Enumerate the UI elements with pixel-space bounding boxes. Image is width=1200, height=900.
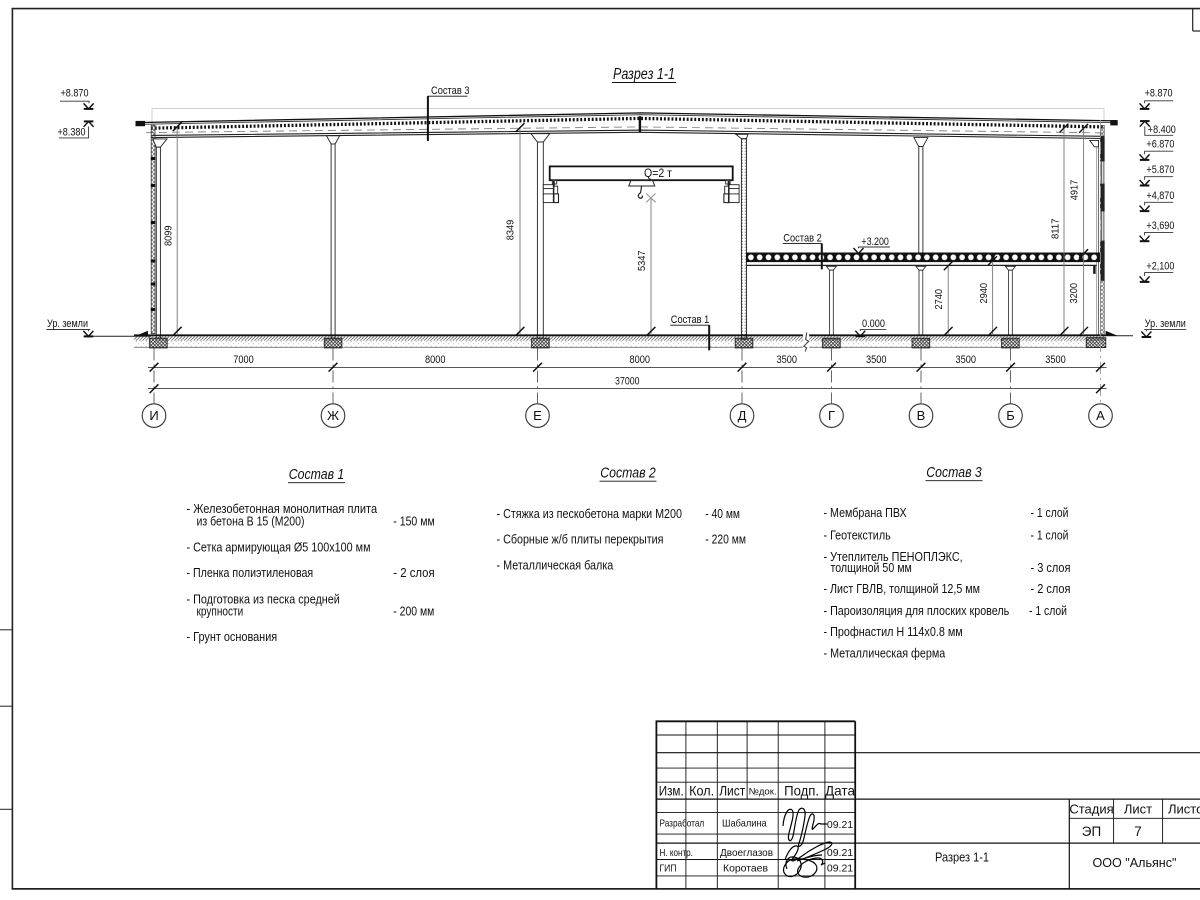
svg-text:- 1 слой: - 1 слой [1029, 603, 1067, 618]
svg-text:ООО "Альянс": ООО "Альянс" [1093, 855, 1177, 870]
svg-text:Ур. земли: Ур. земли [1145, 318, 1186, 330]
svg-text:8349: 8349 [505, 220, 517, 241]
svg-text:+8.380: +8.380 [58, 126, 86, 138]
svg-text:Разработал: Разработал [660, 818, 705, 830]
svg-text:2940: 2940 [978, 283, 990, 304]
svg-text:Состав 2: Состав 2 [783, 232, 822, 244]
svg-text:- 1 слой: - 1 слой [1031, 505, 1069, 520]
svg-text:- Профнастил Н 114х0.8 мм: - Профнастил Н 114х0.8 мм [824, 624, 963, 639]
svg-text:Лист: Лист [1124, 801, 1152, 816]
svg-text:8117: 8117 [1049, 218, 1061, 239]
svg-text:- Стяжка из пескобетона марки: - Стяжка из пескобетона марки М200 [497, 506, 683, 521]
svg-text:- 220 мм: - 220 мм [705, 532, 746, 547]
svg-text:ЭП: ЭП [1082, 824, 1101, 839]
svg-text:2740: 2740 [933, 289, 945, 310]
svg-text:Подп.: Подп. [784, 782, 819, 798]
svg-text:ГИП: ГИП [660, 862, 677, 874]
svg-text:+8.870: +8.870 [1145, 88, 1173, 100]
svg-text:И: И [149, 408, 158, 423]
svg-text:№док.: №док. [749, 787, 777, 798]
svg-text:+6.870: +6.870 [1146, 139, 1174, 151]
svg-text:- Геотекстиль: - Геотекстиль [824, 528, 891, 543]
svg-text:8099: 8099 [162, 225, 174, 246]
svg-text:4917: 4917 [1068, 180, 1080, 201]
svg-text:7: 7 [1134, 824, 1142, 839]
svg-text:Разрез 1-1: Разрез 1-1 [935, 851, 989, 865]
svg-text:Листов: Листов [1168, 801, 1200, 816]
svg-text:0.000: 0.000 [862, 318, 885, 330]
svg-text:+8.870: +8.870 [61, 87, 89, 99]
svg-text:8000: 8000 [425, 354, 446, 366]
svg-text:- 3 слоя: - 3 слоя [1031, 560, 1071, 575]
svg-text:Г: Г [828, 408, 835, 423]
svg-text:Состав 2: Состав 2 [600, 465, 656, 482]
svg-text:- Сборные ж/б плиты перекрытия: - Сборные ж/б плиты перекрытия [497, 532, 664, 547]
svg-text:Состав 1: Состав 1 [289, 466, 345, 483]
svg-text:- 150 мм: - 150 мм [393, 514, 434, 529]
svg-text:Изм.: Изм. [659, 782, 684, 798]
svg-text:крупности: крупности [197, 604, 244, 619]
svg-text:Двоеглазов: Двоеглазов [720, 847, 773, 859]
svg-text:09.21: 09.21 [827, 819, 853, 831]
svg-text:+4,870: +4,870 [1146, 190, 1174, 202]
svg-text:Д: Д [738, 408, 747, 423]
svg-text:- Пленка полиэтиленовая: - Пленка полиэтиленовая [187, 565, 314, 580]
svg-text:В: В [917, 408, 926, 423]
svg-text:- 40 мм: - 40 мм [705, 506, 740, 521]
svg-text:09.21: 09.21 [827, 847, 853, 859]
svg-text:Шабалина: Шабалина [722, 818, 767, 830]
svg-text:3500: 3500 [777, 354, 798, 366]
svg-text:Ур. земли: Ур. земли [47, 318, 88, 330]
svg-text:- Грунт основания: - Грунт основания [187, 629, 278, 644]
svg-text:- 1 слой: - 1 слой [1031, 528, 1069, 543]
svg-text:Кол.: Кол. [689, 782, 714, 798]
svg-text:толщиной 50 мм: толщиной 50 мм [831, 560, 912, 575]
svg-text:- Мембрана ПВХ: - Мембрана ПВХ [824, 505, 907, 520]
svg-text:Разрез 1-1: Разрез 1-1 [613, 66, 675, 83]
svg-text:Е: Е [533, 408, 542, 423]
svg-text:- Пароизоляция для плоских кро: - Пароизоляция для плоских кровель [824, 603, 1010, 618]
svg-text:Н. контр.: Н. контр. [660, 847, 693, 859]
svg-text:8000: 8000 [630, 354, 651, 366]
svg-text:3200: 3200 [1068, 283, 1080, 304]
svg-text:09.21: 09.21 [827, 862, 853, 874]
svg-text:Стадия: Стадия [1069, 801, 1113, 816]
svg-text:Q=2 т: Q=2 т [644, 168, 673, 180]
svg-text:37000: 37000 [615, 376, 640, 388]
svg-text:- Металлическая балка: - Металлическая балка [497, 558, 614, 573]
svg-text:Лист: Лист [719, 782, 746, 798]
svg-text:3500: 3500 [956, 354, 977, 366]
svg-text:5347: 5347 [636, 250, 648, 271]
svg-text:Ж: Ж [327, 408, 339, 423]
svg-text:+3.200: +3.200 [861, 236, 889, 248]
svg-text:- Лист ГВЛВ, толщиной 12,5 мм: - Лист ГВЛВ, толщиной 12,5 мм [824, 581, 981, 596]
svg-text:+5.870: +5.870 [1146, 164, 1174, 176]
svg-text:7000: 7000 [233, 354, 254, 366]
svg-text:3500: 3500 [1045, 354, 1066, 366]
svg-text:+2,100: +2,100 [1146, 261, 1174, 273]
svg-text:Б: Б [1006, 408, 1015, 423]
svg-text:Коротаев: Коротаев [723, 862, 768, 874]
svg-text:- 200 мм: - 200 мм [393, 604, 434, 619]
svg-text:3500: 3500 [866, 354, 887, 366]
svg-text:+8.400: +8.400 [1148, 124, 1176, 136]
svg-text:+3,690: +3,690 [1146, 220, 1174, 232]
svg-text:Состав 3: Состав 3 [431, 85, 470, 97]
svg-text:- Металлическая ферма: - Металлическая ферма [824, 646, 946, 661]
svg-text:А: А [1096, 408, 1105, 423]
svg-text:- Сетка армирующая Ø5 100х100: - Сетка армирующая Ø5 100х100 мм [187, 540, 371, 555]
svg-text:- 2 слоя: - 2 слоя [1031, 581, 1071, 596]
svg-text:Состав 3: Состав 3 [926, 464, 982, 481]
svg-text:Состав 1: Состав 1 [671, 314, 710, 326]
svg-text:Дата: Дата [825, 782, 855, 798]
svg-text:из бетона В 15 (М200): из бетона В 15 (М200) [197, 514, 305, 529]
svg-text:- 2 слоя: - 2 слоя [393, 565, 434, 580]
